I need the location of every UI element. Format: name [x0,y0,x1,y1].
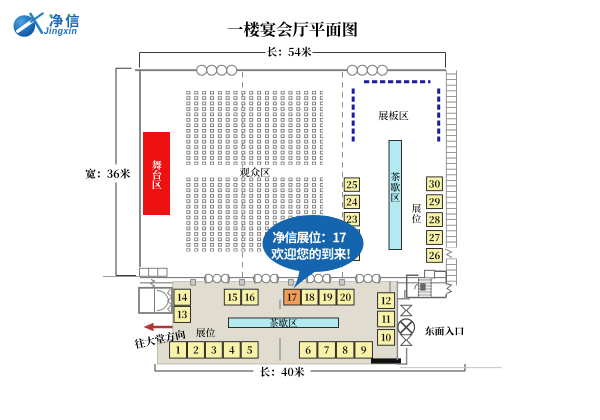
svg-text:Jingxin: Jingxin [44,26,78,36]
